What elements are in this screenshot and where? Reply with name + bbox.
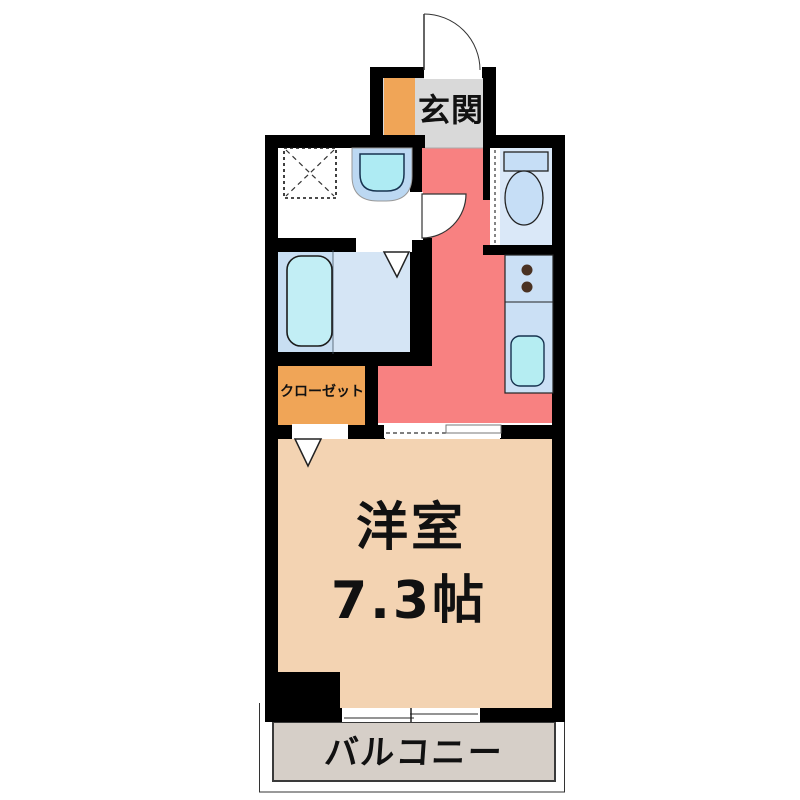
wall: [278, 238, 420, 252]
room-name-label: 洋室: [356, 502, 466, 554]
wall: [265, 425, 385, 439]
wall: [370, 67, 483, 78]
wall: [410, 148, 422, 194]
genkan-label: 玄関: [418, 94, 484, 126]
wall: [365, 352, 378, 430]
washroom-floor: [278, 148, 410, 238]
sliding-door-panel: [446, 425, 501, 433]
shoe-cabinet: [384, 78, 415, 135]
closet-label: クローゼット: [280, 385, 364, 399]
floor-plan: 玄関 クローゼット 洋室 7.3帖 バルコニー: [0, 0, 800, 800]
wall: [278, 352, 420, 366]
wall: [483, 148, 490, 200]
pillar: [265, 672, 340, 722]
wall: [483, 245, 552, 255]
toilet-floor: [500, 148, 552, 245]
room-size-label: 7.3帖: [331, 575, 487, 627]
balcony-label: バルコニー: [323, 736, 505, 770]
entrance-door-arc: [424, 14, 480, 70]
wall: [480, 708, 565, 722]
wall: [552, 135, 565, 722]
bathtub-panel: [278, 250, 333, 354]
sliding-door: [384, 424, 501, 438]
wall: [265, 135, 425, 148]
wall: [500, 425, 552, 439]
wall: [410, 238, 432, 366]
